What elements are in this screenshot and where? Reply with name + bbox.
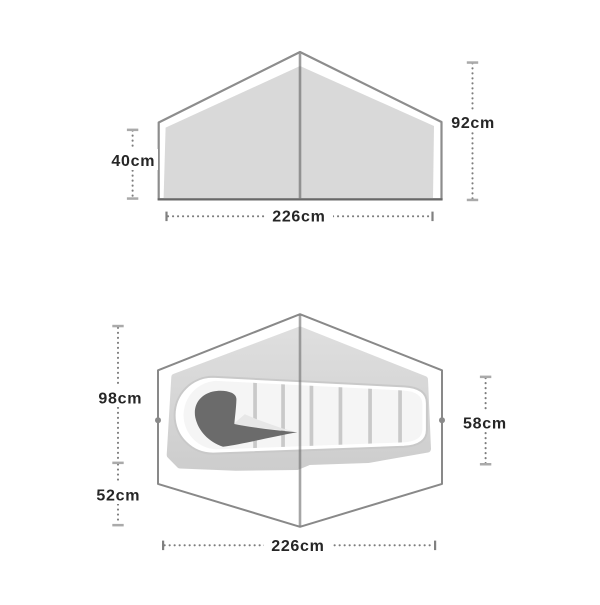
- svg-text:226cm: 226cm: [271, 538, 324, 555]
- svg-text:98cm: 98cm: [98, 390, 142, 407]
- svg-text:40cm: 40cm: [111, 153, 155, 170]
- svg-text:58cm: 58cm: [463, 415, 507, 432]
- svg-text:52cm: 52cm: [96, 487, 140, 504]
- svg-text:92cm: 92cm: [451, 115, 495, 132]
- svg-text:226cm: 226cm: [272, 209, 325, 226]
